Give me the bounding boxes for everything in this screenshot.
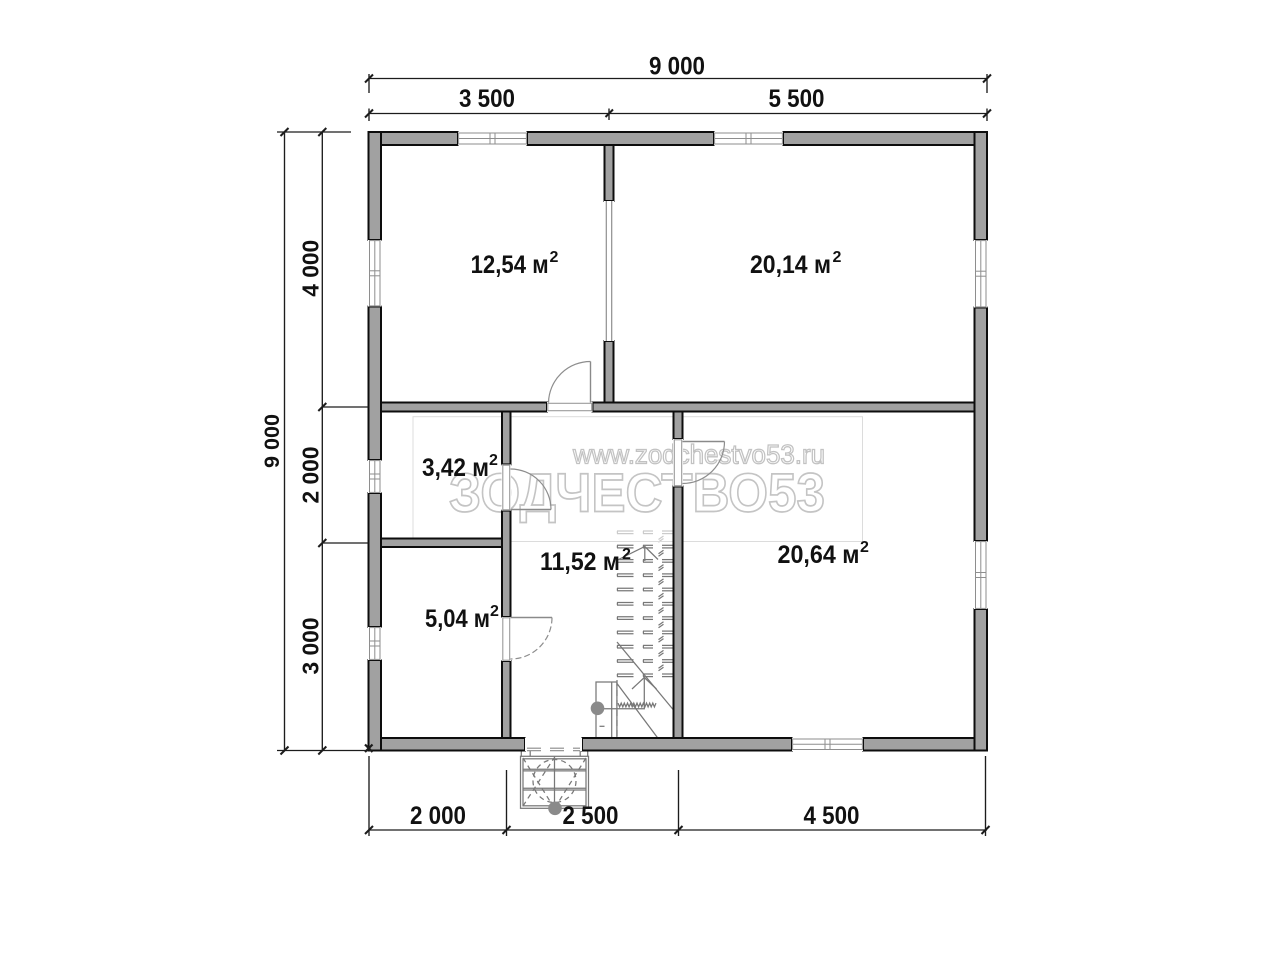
svg-text:2 500: 2 500 [563,802,619,830]
svg-text:4 000: 4 000 [298,240,324,297]
svg-text:4 500: 4 500 [804,802,860,830]
svg-text:20,64 м: 20,64 м [778,541,860,569]
svg-text:3,42 м: 3,42 м [422,454,489,482]
svg-text:5 500: 5 500 [769,85,825,113]
svg-text:2: 2 [833,249,842,266]
svg-text:2: 2 [622,546,631,563]
svg-text:2: 2 [489,452,498,469]
svg-text:2: 2 [490,603,499,620]
svg-text:5,04 м: 5,04 м [425,605,490,633]
svg-text:9 000: 9 000 [649,53,705,81]
svg-text:11,52 м: 11,52 м [540,548,620,576]
svg-text:2: 2 [860,539,869,556]
svg-text:2: 2 [550,249,559,266]
svg-text:20,14 м: 20,14 м [750,251,831,279]
svg-text:3 500: 3 500 [459,85,515,113]
svg-text:3 000: 3 000 [298,618,324,675]
svg-text:9 000: 9 000 [261,414,284,468]
svg-text:2 000: 2 000 [298,447,324,504]
svg-text:2 000: 2 000 [410,802,466,830]
svg-text:12,54 м: 12,54 м [471,251,549,279]
